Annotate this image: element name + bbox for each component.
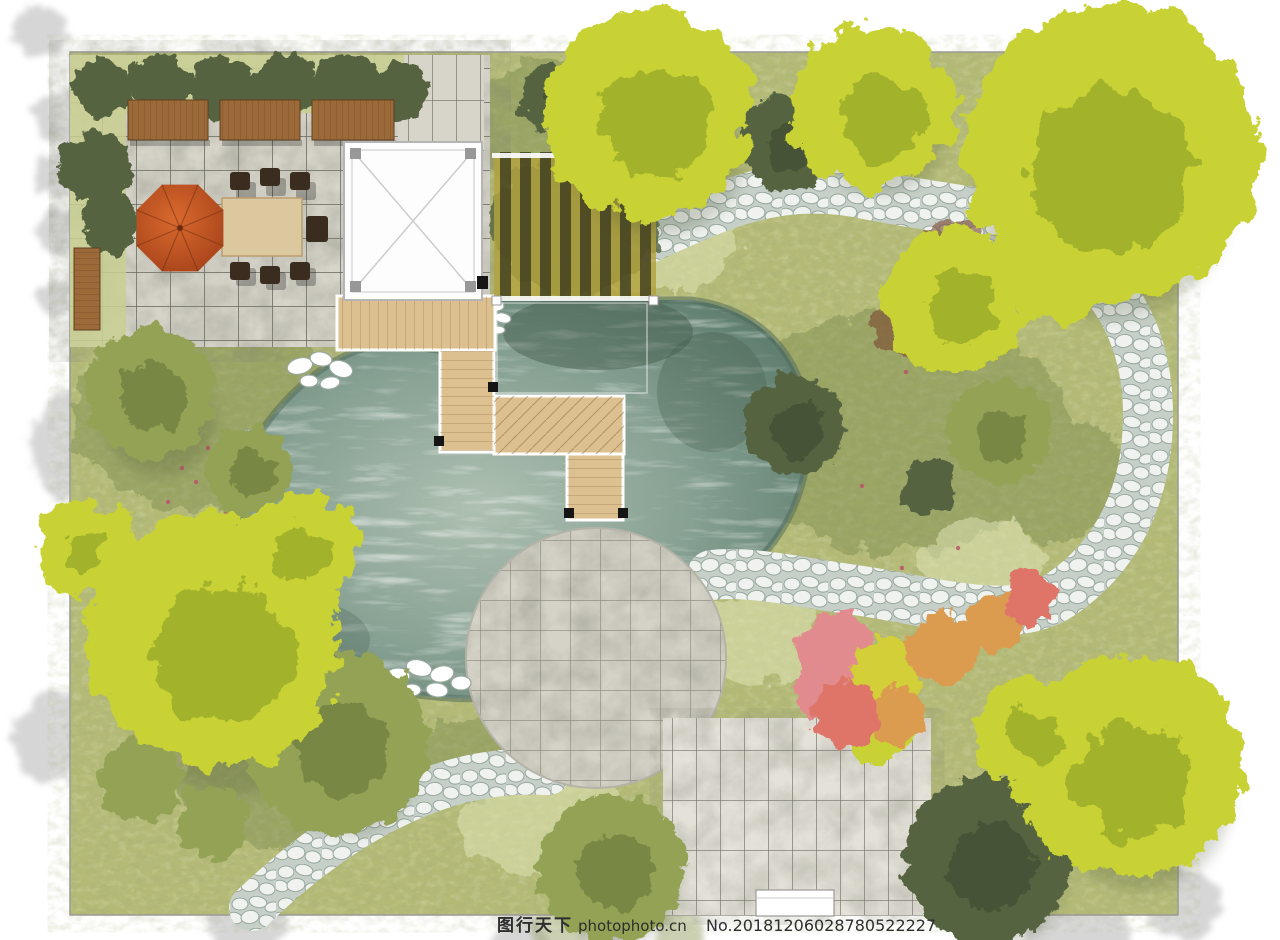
canopy-post-dark — [477, 276, 488, 289]
dining-table — [222, 198, 302, 256]
dining-chair — [260, 168, 280, 186]
garden-plan-rendering: 图行天下 photophoto.cn No.201812060287805222… — [0, 0, 1280, 940]
garden-plan-page: 图行天下 photophoto.cn No.201812060287805222… — [0, 0, 1280, 940]
dining-chair — [290, 262, 310, 280]
parasol — [137, 185, 224, 272]
dining-chair — [230, 172, 250, 190]
patio-bench — [756, 890, 834, 916]
watermark: 图行天下 photophoto.cn No.201812060287805222… — [497, 915, 936, 936]
dining-chair — [306, 216, 328, 242]
watermark-site: photophoto.cn — [578, 917, 687, 935]
dining-chair — [230, 262, 250, 280]
watermark-brand: 图行天下 — [497, 915, 573, 936]
garden-benches — [128, 100, 396, 146]
dining-chair — [290, 172, 310, 190]
watermark-serial: No.20181206028780522227 — [706, 916, 936, 935]
planter-bench — [74, 248, 100, 330]
dining-chair — [260, 266, 280, 284]
tree-canopy — [176, 786, 248, 858]
white-pergola — [344, 142, 482, 300]
tree-canopy — [902, 460, 958, 516]
